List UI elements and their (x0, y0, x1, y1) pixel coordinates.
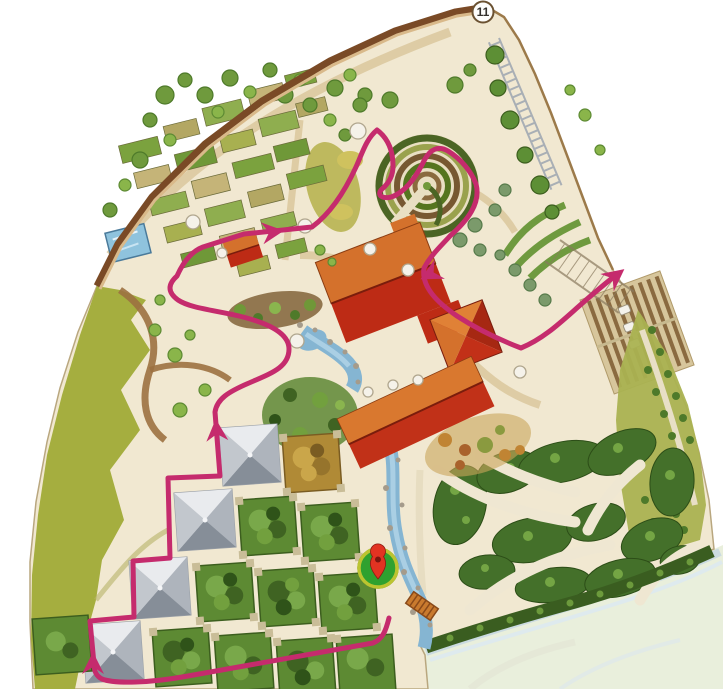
hedge-plot (235, 493, 301, 559)
garden-map: 11 (0, 0, 723, 689)
hedge-plot (297, 499, 363, 565)
gold-hedge-plot (279, 430, 345, 496)
pyramid-plot (174, 489, 236, 551)
pyramid-plot (129, 557, 191, 619)
hedge-plot (192, 559, 258, 625)
station-badge[interactable]: 11 (473, 2, 494, 23)
station-badge-number: 11 (477, 5, 490, 19)
hedge-plot (254, 564, 320, 630)
hedge-plot (32, 615, 92, 675)
hedge-plot (211, 629, 277, 689)
garden-map-stage: 11 (0, 0, 723, 689)
hedge-plot (333, 631, 396, 689)
pyramid-plot (219, 424, 281, 486)
